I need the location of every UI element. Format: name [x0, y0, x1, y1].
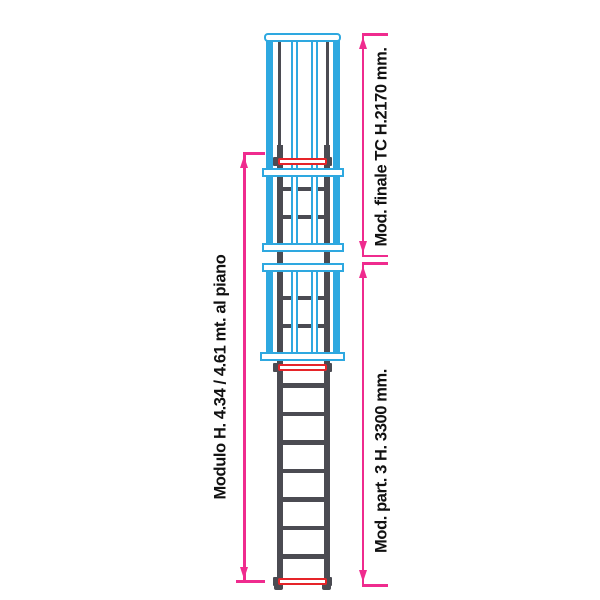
dimension-tick [243, 152, 265, 155]
dimension-arrow-down [240, 567, 248, 579]
ladder-rung [281, 554, 326, 559]
dimension-label-part3-module: Mod. part. 3 H. 3300 mm. [373, 369, 392, 553]
dimension-line-left [243, 153, 246, 582]
ladder-rung [281, 526, 326, 531]
dimension-label-final-module: Mod. finale TC H.2170 mm. [373, 47, 392, 246]
dimension-tick [236, 580, 265, 583]
platform-rung-middle [273, 363, 332, 372]
cage-vertical-outer-right [333, 263, 340, 354]
cage-vertical-middle [311, 263, 318, 354]
ladder-rung [281, 187, 326, 192]
dimension-arrow-down [359, 570, 367, 582]
cage-vertical-middle [291, 37, 298, 251]
cage-top-cap [264, 33, 341, 42]
ladder-rung [281, 383, 326, 388]
cage-back-strap-right [326, 39, 329, 149]
ladder-rung [281, 440, 326, 445]
dimension-tick [362, 584, 388, 587]
cage-hoop [262, 168, 344, 177]
cage-hoop [262, 243, 344, 252]
dimension-tick [362, 262, 388, 265]
cage-vertical-outer-left [266, 263, 273, 354]
ladder-rung [281, 497, 326, 502]
cage-hoop [262, 263, 344, 272]
dimension-line-right-upper [362, 34, 365, 257]
dimension-arrow-down [359, 241, 367, 253]
dimension-arrow-up [240, 156, 248, 168]
ladder-rung [281, 412, 326, 417]
ladder-rung [281, 296, 326, 301]
ladder-technical-drawing: Modulo H. 4.34 / 4.61 mt. al piano Mod. … [0, 0, 600, 600]
ladder-rung [281, 469, 326, 474]
cage-vertical-middle [291, 263, 298, 354]
dimension-arrow-up [359, 37, 367, 49]
dimension-line-right-lower [362, 263, 365, 586]
dimension-tick [362, 255, 388, 258]
platform-rung-top [273, 157, 332, 166]
cage-back-strap-left [278, 39, 281, 149]
cage-vertical-outer-left [266, 37, 273, 251]
dimension-arrow-up [359, 266, 367, 278]
cage-vertical-middle [311, 37, 318, 251]
dimension-label-module-height: Modulo H. 4.34 / 4.61 mt. al piano [212, 255, 231, 500]
cage-bottom-flange [260, 352, 345, 361]
dimension-tick [362, 33, 388, 36]
ladder-rung [281, 215, 326, 220]
platform-rung-bottom [273, 577, 332, 586]
cage-vertical-outer-right [333, 37, 340, 251]
ladder-rung [281, 324, 326, 329]
